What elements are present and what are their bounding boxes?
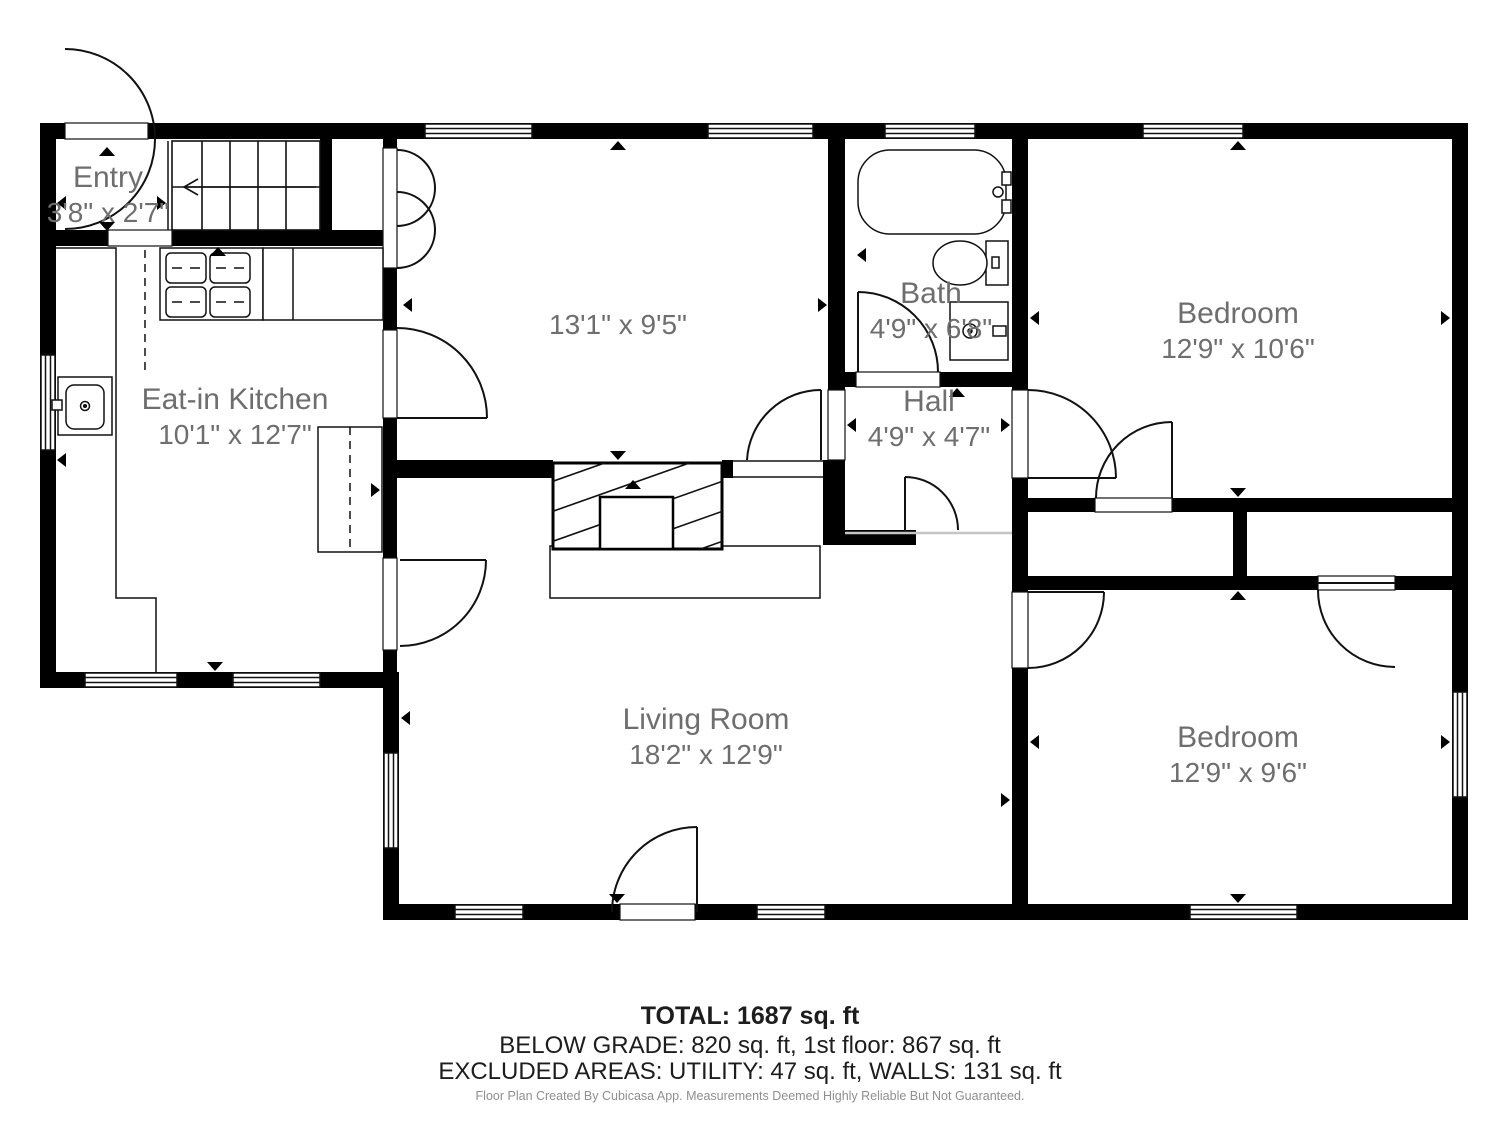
bathtub-icon (858, 150, 1011, 234)
floor-plan-page: Entry 3'8" x 2'7" Eat-in Kitchen 10'1" x… (0, 0, 1500, 1125)
kitchen-counter-top (263, 248, 383, 320)
stove-icon (160, 248, 263, 320)
window-icon (455, 905, 523, 919)
excluded-areas-text: EXCLUDED AREAS: UTILITY: 47 sq. ft, WALL… (0, 1058, 1500, 1086)
closet-door-icon (397, 150, 435, 226)
closet-door-icon (905, 477, 958, 531)
window-icon (1453, 692, 1467, 797)
window-icon (1143, 124, 1243, 138)
door-icon (858, 292, 938, 372)
closet-door-icon (397, 192, 435, 268)
walls-layer (40, 123, 1468, 920)
window-icon (708, 124, 813, 138)
window-icon (85, 673, 177, 687)
door-icon (612, 827, 697, 912)
closet-door-icon (1096, 422, 1172, 498)
closet-door-icon (1318, 583, 1395, 667)
door-icon (400, 560, 486, 646)
window-icon (1190, 905, 1297, 919)
window-icon (425, 124, 532, 138)
doors-layer (65, 49, 1395, 912)
door-icon (1028, 592, 1104, 668)
door-icon (397, 328, 487, 418)
disclaimer-text: Floor Plan Created By Cubicasa App. Meas… (0, 1089, 1500, 1103)
window-icon (384, 753, 398, 848)
floor-plan-drawing (0, 0, 1500, 1125)
kitchen-fixtures (52, 248, 383, 672)
total-area-text: TOTAL: 1687 sq. ft (0, 1002, 1500, 1031)
window-icon (233, 673, 320, 687)
window-icon (757, 905, 825, 919)
below-grade-text: BELOW GRADE: 820 sq. ft, 1st floor: 867 … (0, 1032, 1500, 1060)
bathroom-vanity-icon (950, 302, 1008, 360)
kitchen-sink-icon (52, 377, 112, 435)
bath-fixtures (858, 150, 1011, 360)
fireplace-icon (500, 408, 820, 680)
toilet-icon (933, 241, 1008, 285)
door-icon (747, 390, 821, 460)
kitchen-counter (56, 248, 156, 672)
window-icon (885, 124, 975, 138)
stairs-icon (172, 141, 320, 230)
